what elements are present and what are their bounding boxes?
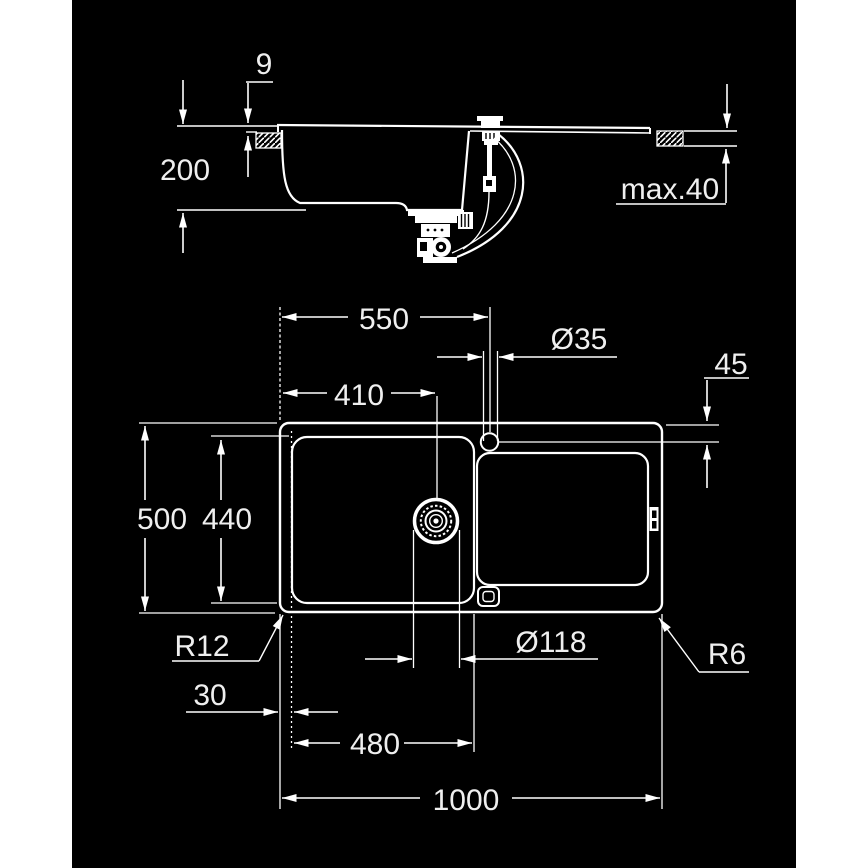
drain-flange [408,210,464,216]
worktop-section-left [256,133,281,148]
drain-body-upper [415,216,457,223]
overflow-slot-hole [652,521,657,529]
drain-side-box-hole [420,242,427,251]
worktop-section-right [657,131,683,146]
washer [484,141,498,145]
dim-label-rim-height: 9 [256,48,273,81]
dim-label-tap-from-edge: 45 [714,348,747,381]
tap-hole-plug-cap [477,116,503,121]
sink-technical-drawing: 9 200 max.40 [0,0,868,868]
dim-label-worktop-thickness: max.40 [621,173,719,206]
dim-label-overall-width: 500 [137,503,187,536]
overflow-slot-hole [652,511,657,519]
dim-label-overall-length: 1000 [433,784,500,817]
drain-center [433,518,438,523]
drain-detail-dot [441,229,444,232]
drawing-field [72,0,796,868]
drain-detail-dot [427,229,430,232]
tap-hole-plug-body [481,121,500,128]
drawing-canvas: 9 200 max.40 [0,0,868,868]
drain-trap-cup-center [439,245,443,249]
drain-strainer [415,500,458,543]
dim-label-bowl-length: 480 [350,728,400,761]
dim-label-drain-from-left: 410 [334,379,384,412]
rod-guide-hole [486,180,492,186]
drain-base-plate [423,257,457,263]
dim-label-bowl-depth: 200 [160,154,210,187]
popup-rod [487,145,492,176]
dim-label-tap-hole-dia: Ø35 [551,323,608,356]
dim-label-drain-dia: Ø118 [515,626,586,659]
dim-label-tap-from-left: 550 [359,303,409,336]
dim-label-bowl-width: 440 [202,503,252,536]
dim-label-bowl-corner-radius: R12 [174,630,229,663]
dim-label-bowl-offset-left: 30 [193,679,226,712]
drain-detail-dot [434,229,437,232]
dim-label-outer-corner-radius: R6 [708,638,746,671]
mounting-nut [482,131,500,141]
